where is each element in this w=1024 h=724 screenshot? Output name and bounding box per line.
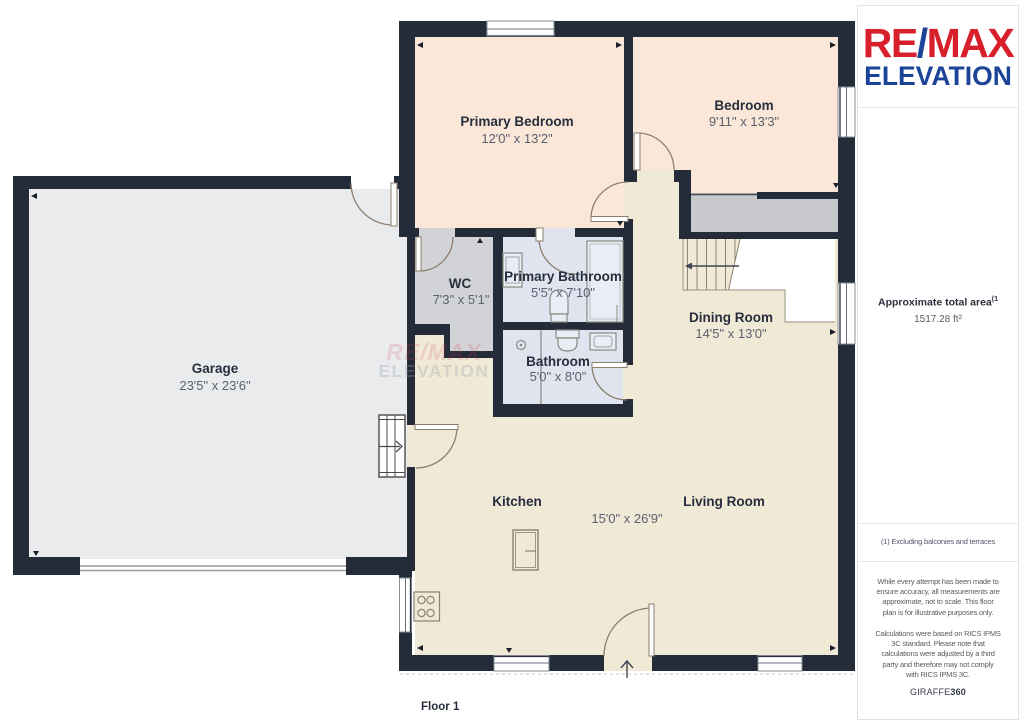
svg-text:14'5" x 13'0": 14'5" x 13'0" bbox=[695, 326, 767, 341]
svg-text:9'11" x 13'3": 9'11" x 13'3" bbox=[709, 114, 780, 129]
svg-text:Living Room: Living Room bbox=[683, 494, 765, 509]
svg-text:WC: WC bbox=[449, 276, 472, 291]
svg-text:Dining Room: Dining Room bbox=[689, 310, 773, 325]
svg-text:Kitchen: Kitchen bbox=[492, 494, 542, 509]
svg-text:Garage: Garage bbox=[192, 361, 239, 376]
svg-text:Primary Bathroom: Primary Bathroom bbox=[504, 269, 622, 284]
svg-text:Bedroom: Bedroom bbox=[714, 98, 773, 113]
svg-text:23'5" x 23'6": 23'5" x 23'6" bbox=[179, 378, 251, 393]
svg-text:ELEVATION: ELEVATION bbox=[378, 361, 489, 381]
svg-text:5'5" x 7'10": 5'5" x 7'10" bbox=[531, 285, 595, 300]
svg-text:15'0" x 26'9": 15'0" x 26'9" bbox=[591, 511, 663, 526]
svg-text:12'0" x 13'2": 12'0" x 13'2" bbox=[481, 131, 553, 146]
svg-text:5'0" x 8'0": 5'0" x 8'0" bbox=[530, 369, 587, 384]
svg-text:Primary Bedroom: Primary Bedroom bbox=[460, 114, 573, 129]
svg-text:7'3" x 5'1": 7'3" x 5'1" bbox=[433, 292, 490, 307]
svg-text:Bathroom: Bathroom bbox=[526, 354, 590, 369]
svg-text:Floor 1: Floor 1 bbox=[421, 701, 460, 713]
